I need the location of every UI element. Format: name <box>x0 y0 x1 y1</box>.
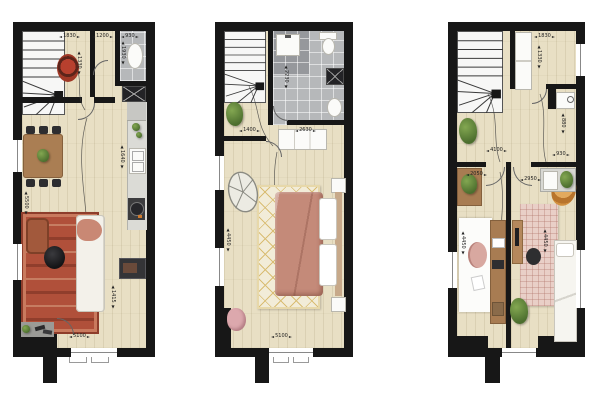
stair-newel <box>256 82 265 90</box>
desk-tray <box>492 302 504 316</box>
pillow <box>319 198 337 240</box>
dining-chair <box>26 126 35 134</box>
wall-hall-living-left <box>22 97 82 103</box>
dim-kitchen-length: 1640 <box>119 144 124 169</box>
dining-chair <box>52 179 61 187</box>
dim-bedroom-length: 4450 <box>225 227 230 252</box>
dim-landing-width: 1400 <box>239 128 260 133</box>
kitchen-cabinet <box>127 102 146 121</box>
wall-bathroom-left <box>268 31 273 125</box>
floorplan-3: 1830 1330 4100 880 930 2050 2950 4450 44… <box>448 22 585 357</box>
window-left-1 <box>13 140 22 172</box>
nightstand <box>331 297 346 312</box>
dim-bathroom-width: 2630 <box>295 128 316 133</box>
staircase-treads-icon <box>224 31 266 103</box>
window-bottom <box>71 348 117 357</box>
dim-storage-width: 930 <box>121 34 139 39</box>
shoes-icon <box>43 329 53 335</box>
window-left <box>448 252 457 288</box>
dim-closet-depth: 1330 <box>536 44 541 69</box>
dim-room-right-length: 4450 <box>542 228 547 253</box>
dim-room-left-length: 4450 <box>460 230 465 255</box>
landing-plant-icon <box>459 118 477 144</box>
wall-mass-bottom-left <box>448 336 488 357</box>
kitchenette-counter <box>540 168 576 192</box>
desk-chair <box>468 242 487 268</box>
dim-entry-depth: 1415 <box>110 284 115 309</box>
pillow <box>319 244 337 286</box>
shower-fixture <box>285 35 291 38</box>
dim-wc-width: 1200 <box>92 34 113 39</box>
kitchen-herb-icon <box>136 132 142 138</box>
kitchenette-sink <box>543 171 558 190</box>
entry-path <box>485 357 500 383</box>
window-left-1 <box>215 156 224 190</box>
dim-hall-depth: 1330 <box>76 50 81 75</box>
wall-hall-living-right <box>94 97 115 103</box>
boiler-dial <box>567 96 574 103</box>
dim-landing-width: 4100 <box>486 148 507 153</box>
floorplan-2: 1400 2630 2230 4450 5100 <box>215 22 353 357</box>
wardrobe <box>515 32 532 90</box>
porch-step <box>273 357 289 363</box>
window-right-bottom <box>576 250 585 308</box>
kitchen-sink <box>129 148 146 174</box>
double-bed-duvet <box>275 192 323 296</box>
wall-bathroom-bottom-b <box>287 120 344 125</box>
floor-plan-sheet: 1830 1200 930 1330 1930 5500 1640 1415 5… <box>0 0 600 400</box>
landing-plant-icon <box>226 102 243 126</box>
porch-step <box>69 357 87 363</box>
dim-room-right-width: 2950 <box>520 177 541 182</box>
office-chair <box>526 248 541 265</box>
cooktop <box>128 198 145 220</box>
room-plant-icon <box>510 298 528 324</box>
pouf <box>227 308 246 331</box>
shower-tray <box>276 34 300 56</box>
desk <box>490 220 506 324</box>
dim-closet-width: 1830 <box>534 34 555 39</box>
tv-cabinet <box>119 258 146 279</box>
window-left-2 <box>13 244 22 280</box>
counter-plant-icon <box>560 171 573 188</box>
porch-step <box>91 357 109 363</box>
dim-niche-depth: 880 <box>560 112 565 134</box>
dim-storage-depth: 1930 <box>120 40 125 65</box>
floorplan-1: 1830 1200 930 1330 1930 5500 1640 1415 5… <box>13 22 155 357</box>
winder-staircase <box>224 31 266 103</box>
paper-sheet <box>471 275 486 291</box>
sofa-throw <box>77 219 102 241</box>
stair-newel <box>492 90 501 99</box>
entry-path <box>43 357 57 383</box>
table-plant-icon <box>37 149 49 162</box>
dim-bathroom-depth: 2230 <box>283 64 288 89</box>
porch-step <box>293 357 309 363</box>
window-left-2 <box>215 248 224 286</box>
washing-machine <box>326 68 344 85</box>
sink-basin-2 <box>132 162 144 172</box>
pan-icon <box>130 202 144 216</box>
window-right-top <box>576 44 585 76</box>
vanity-sink <box>327 98 342 117</box>
pillow <box>556 243 574 257</box>
sink-basin-1 <box>132 151 144 161</box>
winder-staircase <box>457 31 503 113</box>
wall-rooms-top-left <box>457 162 486 167</box>
window-bottom <box>502 348 536 357</box>
papers <box>492 238 505 248</box>
laptop-icon <box>492 260 504 269</box>
window-bottom <box>269 348 313 357</box>
wall-room-divider <box>506 162 511 348</box>
wall-hall-wc <box>90 31 95 97</box>
kitchen-plant-icon <box>132 123 140 131</box>
dim-room-left-width: 2050 <box>466 172 487 177</box>
wall-bedroom-top <box>224 136 266 141</box>
dim-overall-width: 5100 <box>69 334 90 339</box>
entry-path <box>255 357 269 383</box>
tv-art <box>123 263 137 273</box>
entry-plant-icon <box>22 325 30 333</box>
nightstand <box>331 178 346 193</box>
dining-chair <box>52 126 61 134</box>
bench-plant-icon <box>461 174 477 194</box>
wall-niche <box>548 89 556 109</box>
armchair <box>26 218 49 254</box>
single-bed <box>554 240 577 342</box>
wall-bathroom-bottom-a <box>268 120 273 125</box>
flame-accent <box>138 215 142 218</box>
washbasin <box>127 43 143 69</box>
wall-rooms-top-right <box>531 162 576 167</box>
dining-chair <box>26 179 35 187</box>
staircase-treads-icon <box>457 31 503 113</box>
dining-chair <box>39 126 48 134</box>
dining-chair <box>39 179 48 187</box>
boiler <box>556 92 575 109</box>
toilet <box>322 38 335 55</box>
appliance <box>122 86 146 102</box>
dim-hall-width: 1830 <box>59 34 80 39</box>
dim-niche-width: 930 <box>552 152 570 157</box>
dim-overall-width: 5100 <box>271 334 292 339</box>
dim-living-length: 5500 <box>23 190 28 215</box>
office-desk <box>512 220 523 264</box>
monitor-icon <box>515 228 519 246</box>
coffee-table <box>44 246 65 269</box>
